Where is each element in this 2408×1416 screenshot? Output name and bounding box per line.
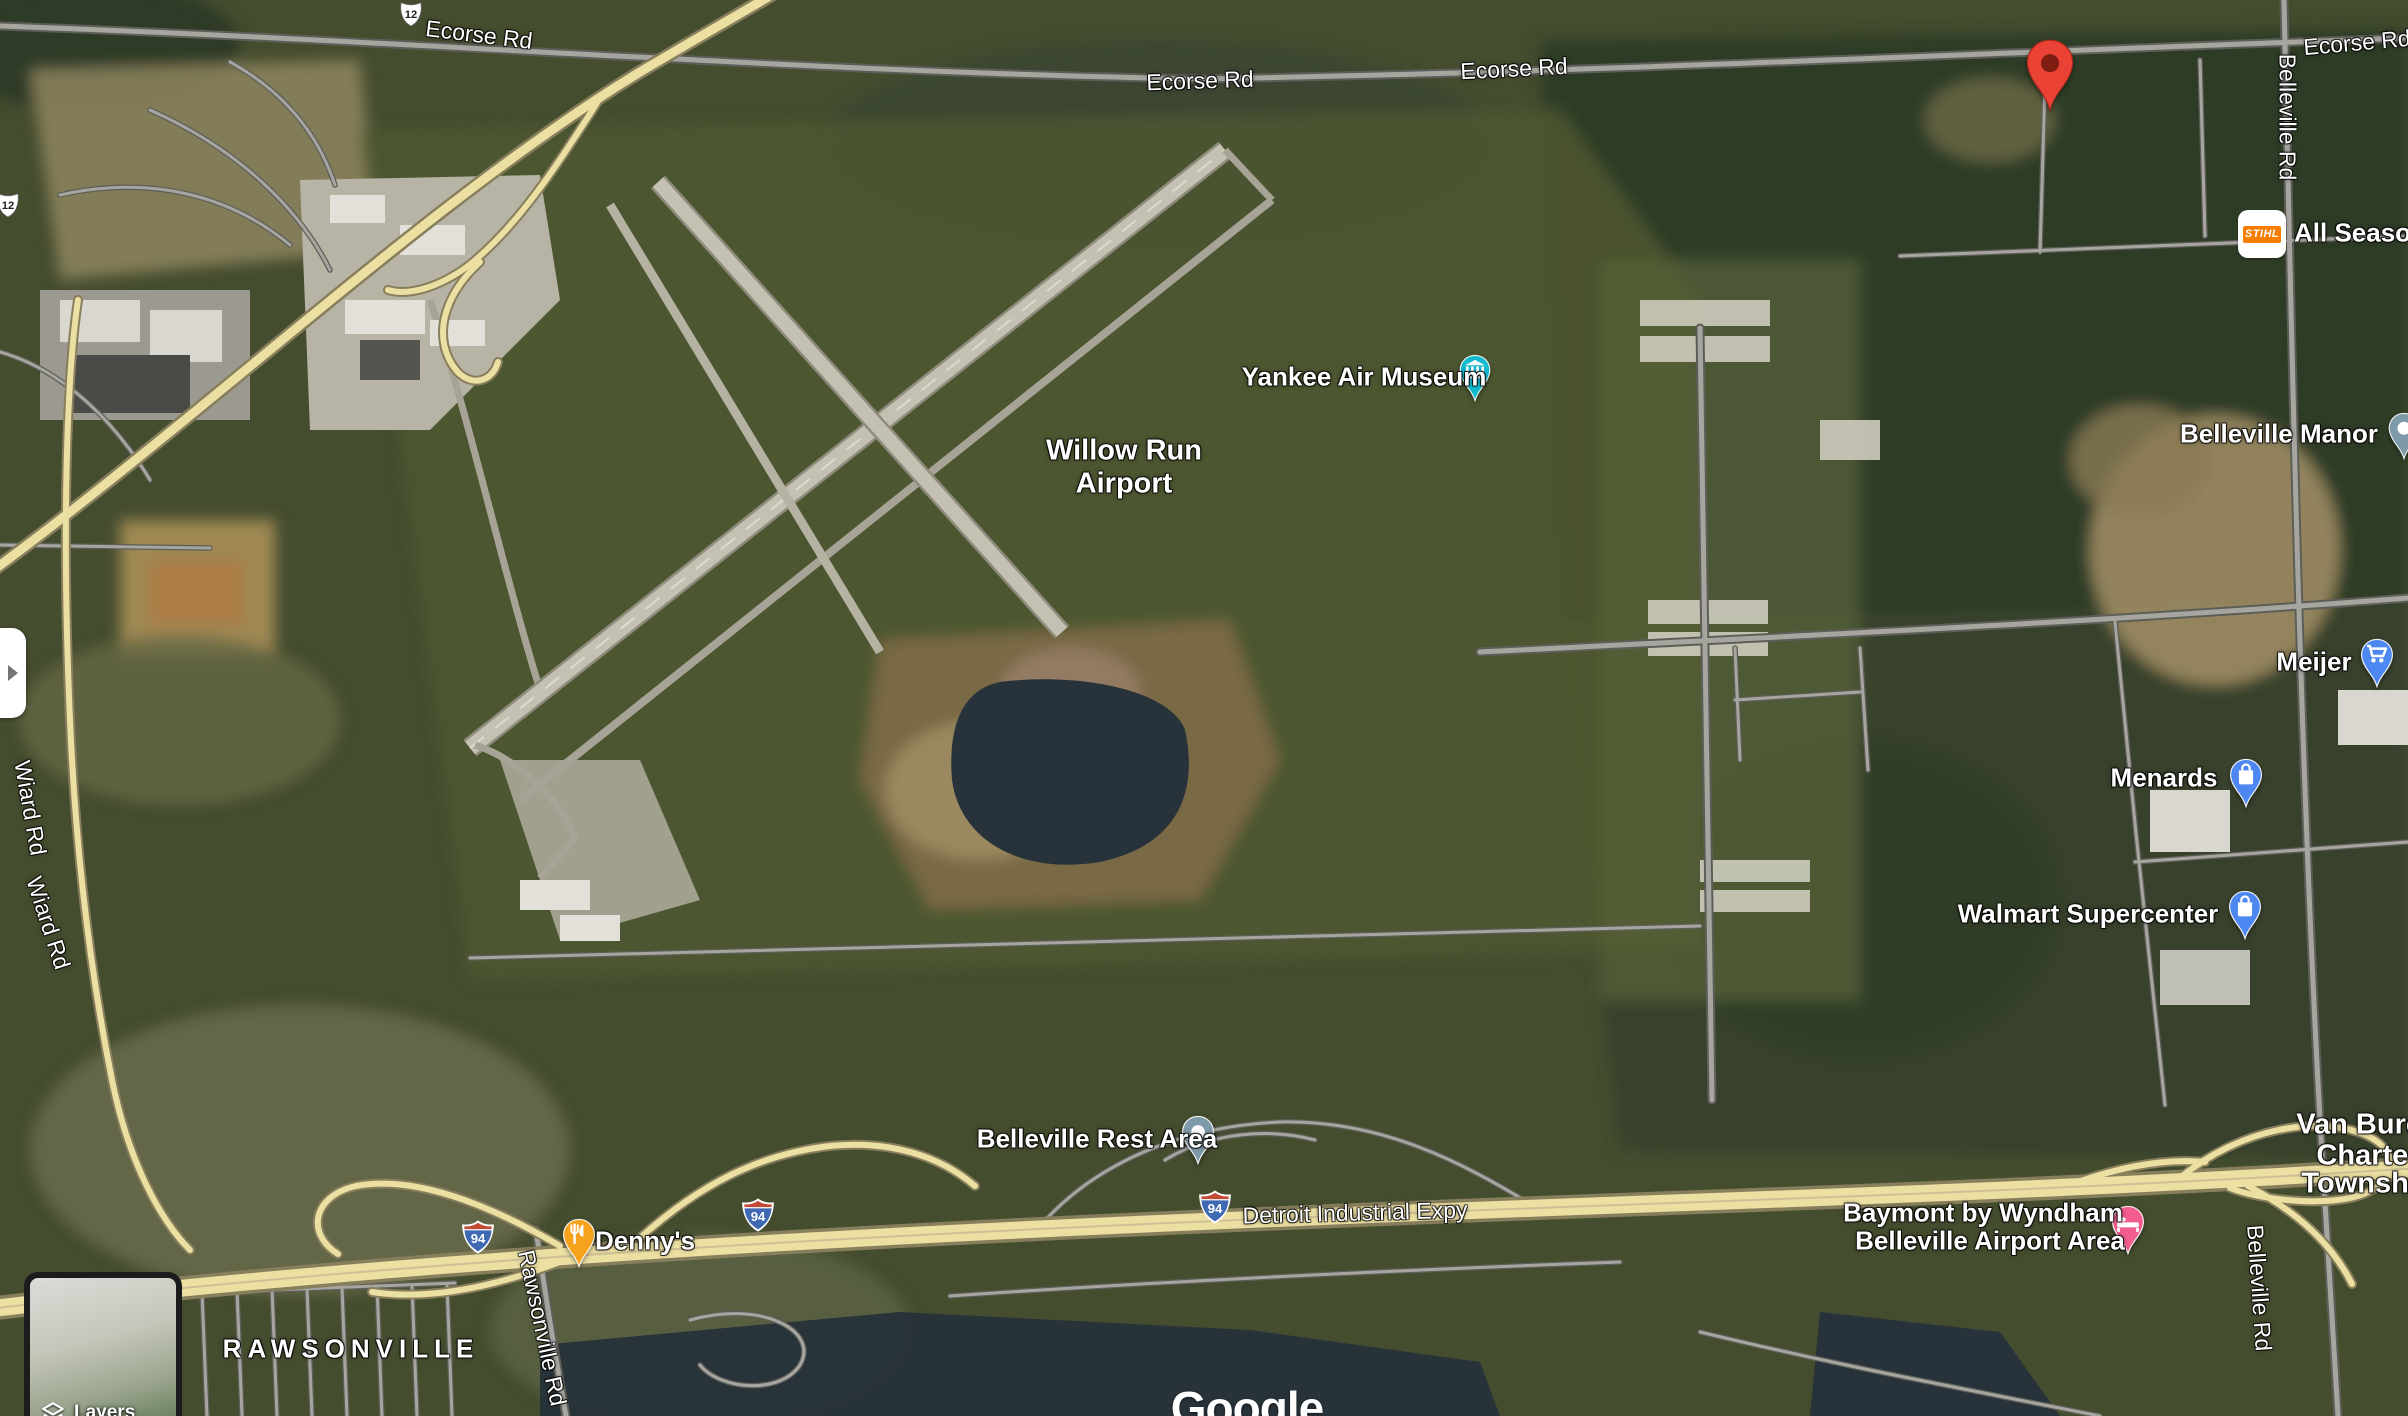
poi-label-baymont-line2[interactable]: Belleville Airport Area xyxy=(1855,1226,2125,1257)
i94-shield-3: 94 xyxy=(1198,1189,1232,1225)
place-label-van-buren-line3[interactable]: Township xyxy=(2301,1168,2408,1201)
dennys-pin[interactable] xyxy=(561,1218,597,1268)
side-panel-toggle[interactable] xyxy=(0,628,26,718)
svg-text:94: 94 xyxy=(751,1209,766,1224)
poi-label-yankee-air-museum[interactable]: Yankee Air Museum xyxy=(1242,362,1487,393)
layers-icon xyxy=(40,1400,66,1416)
place-label-rawsonville[interactable]: RAWSONVILLE xyxy=(223,1334,480,1365)
us-12-shield-left: 12 xyxy=(0,190,22,220)
poi-label-meijer[interactable]: Meijer xyxy=(2276,647,2351,678)
landfill-pond xyxy=(951,679,1189,864)
poi-label-menards[interactable]: Menards xyxy=(2111,763,2218,794)
svg-text:12: 12 xyxy=(2,200,14,212)
road-label-belleville-rd-1: Belleville Rd xyxy=(2274,54,2301,181)
i94-shield-1: 94 xyxy=(461,1219,495,1255)
road-label-ecorse-2: Ecorse Rd xyxy=(1146,66,1254,97)
marker-hole xyxy=(2041,54,2059,72)
layers-label: Layers xyxy=(74,1402,135,1416)
svg-text:94: 94 xyxy=(471,1231,486,1246)
poi-label-walmart-supercenter[interactable]: Walmart Supercenter xyxy=(1958,899,2219,930)
stihl-logo-text: STIHL xyxy=(2243,226,2281,243)
place-label-willow-run-line2[interactable]: Airport xyxy=(1076,468,1173,501)
belleville-manor-pin[interactable] xyxy=(2387,412,2408,460)
meijer-pin[interactable] xyxy=(2359,638,2395,688)
destination-marker[interactable] xyxy=(2024,38,2076,112)
svg-text:94: 94 xyxy=(1208,1201,1223,1216)
walmart-supercenter-pin[interactable] xyxy=(2227,890,2263,940)
stihl-logo[interactable]: STIHL xyxy=(2238,210,2286,258)
poi-label-dennys[interactable]: Denny's xyxy=(595,1226,695,1257)
place-label-van-buren-line1[interactable]: Van Buren xyxy=(2296,1109,2408,1142)
svg-text:12: 12 xyxy=(405,9,417,21)
google-logo[interactable]: Google xyxy=(1171,1381,1323,1416)
poi-label-belleville-manor[interactable]: Belleville Manor xyxy=(2180,419,2378,450)
place-label-willow-run-line1[interactable]: Willow Run xyxy=(1046,435,1202,468)
chevron-right-icon xyxy=(8,665,18,681)
menards-pin[interactable] xyxy=(2228,758,2264,808)
layers-control[interactable]: Layers xyxy=(24,1272,182,1416)
poi-label-baymont-line1[interactable]: Baymont by Wyndham xyxy=(1843,1198,2123,1229)
us-12-shield-top: 12 xyxy=(397,0,425,29)
road-label-ecorse-3: Ecorse Rd xyxy=(1460,53,1569,86)
i94-shield-2: 94 xyxy=(741,1197,775,1233)
poi-label-belleville-rest-area[interactable]: Belleville Rest Area xyxy=(977,1124,1217,1155)
map-viewport[interactable]: Ecorse Rd Ecorse Rd Ecorse Rd Ecorse Rd … xyxy=(0,0,2408,1416)
poi-label-all-seasons[interactable]: All Seasons xyxy=(2294,218,2408,249)
